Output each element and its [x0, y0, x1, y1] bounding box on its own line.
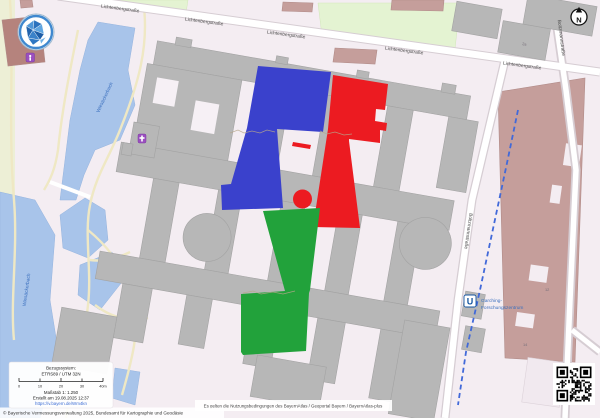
- qr-code: [553, 363, 595, 405]
- map-export-page: U Garching- Forschungszentrum Lichtenber…: [0, 0, 600, 418]
- scale-tick-30: 30: [80, 385, 84, 389]
- poi-icon-2: [138, 134, 146, 143]
- scale-tick-10: 10: [38, 385, 42, 389]
- copyright-text: © Bayerische Vermessungsverwaltung 2025,…: [3, 410, 184, 416]
- scale-tick-40m: 40m: [99, 385, 106, 389]
- u-bahn-logo: U: [467, 297, 474, 307]
- scale-ratio-label: Maßstab 1: 1.250: [44, 390, 79, 395]
- north-arrow-label: N: [576, 16, 581, 25]
- scale-tick-20: 20: [59, 385, 63, 389]
- station-label-line2: Forschungszentrum: [481, 305, 523, 311]
- terms-strip: Es gelten die Nutzungsbedingungen des Ba…: [195, 400, 392, 411]
- house-number-12: 12: [545, 287, 549, 292]
- created-date-label: Erstellt am 19.08.2025 12:37: [33, 396, 90, 401]
- scale-info-box: Bezugssystem: ETRS89 / UTM 32N 0 10 20 3…: [9, 362, 113, 408]
- terms-text: Es gelten die Nutzungsbedingungen des Ba…: [204, 404, 383, 409]
- station-marker: U: [464, 295, 476, 307]
- poi-icon-1: [26, 53, 35, 62]
- copyright-strip: © Bayerische Vermessungsverwaltung 2025,…: [0, 408, 224, 418]
- share-url-link[interactable]: https://v.bayern.de/Wm4kn: [35, 401, 87, 406]
- reference-system-value: ETRS89 / UTM 32N: [41, 372, 80, 377]
- bayernatlas-logo[interactable]: [18, 14, 54, 50]
- reference-system-label: Bezugssystem:: [46, 366, 76, 371]
- scale-tick-0: 0: [18, 385, 20, 389]
- overlay-red-circle: [293, 190, 312, 209]
- station-label-line1: Garching-: [481, 298, 502, 304]
- map-canvas[interactable]: U Garching- Forschungszentrum Lichtenber…: [0, 0, 600, 418]
